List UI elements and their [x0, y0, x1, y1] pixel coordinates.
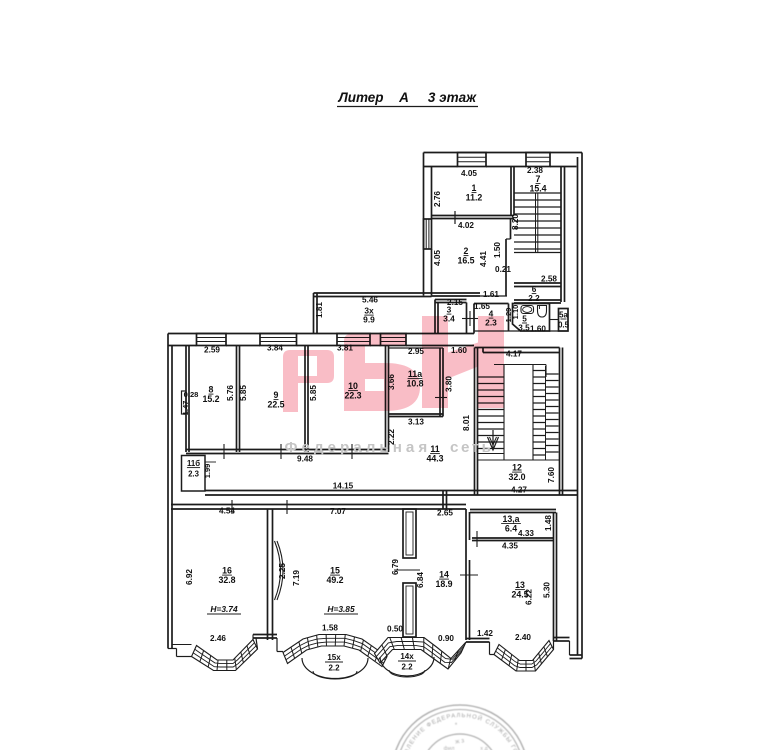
svg-text:1.60: 1.60 [530, 325, 546, 334]
svg-text:0.50: 0.50 [387, 625, 403, 634]
svg-text:6.79: 6.79 [391, 559, 400, 575]
svg-text:8.01: 8.01 [462, 415, 471, 431]
svg-text:1.58: 1.58 [322, 624, 338, 633]
svg-text:4.27: 4.27 [511, 486, 527, 495]
svg-text:12: 12 [512, 463, 522, 473]
svg-text:7.19: 7.19 [292, 570, 301, 586]
svg-text:15х: 15х [327, 653, 341, 662]
svg-text:8: 8 [209, 385, 214, 395]
svg-text:7.60: 7.60 [547, 467, 556, 483]
svg-text:5.85: 5.85 [309, 385, 318, 401]
svg-text:4.33: 4.33 [518, 529, 534, 538]
svg-text:2.95: 2.95 [408, 347, 424, 356]
svg-text:2.3: 2.3 [188, 470, 200, 479]
svg-text:9.9: 9.9 [363, 315, 375, 325]
svg-text:Литер: Литер [337, 90, 383, 105]
svg-text:14х: 14х [400, 652, 414, 661]
svg-text:11: 11 [430, 444, 439, 454]
svg-text:0.90: 0.90 [438, 634, 454, 643]
svg-text:6: 6 [532, 285, 537, 294]
svg-text:0.5: 0.5 [558, 321, 570, 330]
svg-text:1.61: 1.61 [483, 290, 499, 299]
svg-text:4.05: 4.05 [433, 250, 442, 266]
svg-text:х д: х д [480, 746, 488, 750]
svg-text:2.25: 2.25 [278, 563, 287, 579]
svg-text:11б: 11б [187, 459, 200, 468]
svg-text:4.41: 4.41 [479, 251, 488, 267]
svg-text:3.84: 3.84 [267, 344, 283, 353]
svg-text:14: 14 [439, 570, 449, 580]
svg-text:4.54: 4.54 [219, 507, 235, 516]
svg-text:15: 15 [330, 566, 340, 576]
svg-text:А: А [398, 90, 409, 105]
svg-text:4.17: 4.17 [506, 350, 522, 359]
svg-text:32.0: 32.0 [508, 472, 525, 482]
svg-text:5.85: 5.85 [239, 385, 248, 401]
svg-text:2.2: 2.2 [528, 294, 540, 303]
svg-text:14.15: 14.15 [333, 482, 354, 491]
svg-text:2.59: 2.59 [204, 346, 220, 355]
svg-text:2.65: 2.65 [437, 509, 453, 518]
svg-text:15.4: 15.4 [529, 184, 546, 194]
svg-text:1.47: 1.47 [181, 401, 190, 416]
svg-text:6.22: 6.22 [525, 589, 534, 605]
svg-text:2.40: 2.40 [515, 633, 531, 642]
svg-text:32.8: 32.8 [218, 575, 235, 585]
svg-text:2.58: 2.58 [541, 275, 557, 284]
svg-text:16.5: 16.5 [457, 256, 474, 266]
svg-text:Н=3.74: Н=3.74 [210, 604, 238, 614]
svg-text:8.20: 8.20 [511, 214, 520, 230]
svg-text:сеть: сеть [450, 439, 493, 456]
svg-text:3 этаж: 3 этаж [428, 90, 477, 105]
svg-text:2.46: 2.46 [210, 634, 226, 643]
svg-text:1.48: 1.48 [544, 515, 553, 531]
svg-text:9: 9 [274, 390, 279, 400]
svg-text:2.2: 2.2 [328, 664, 340, 673]
svg-text:49.2: 49.2 [326, 575, 343, 585]
svg-text:2.2: 2.2 [401, 663, 413, 672]
svg-text:1.65: 1.65 [474, 302, 490, 311]
svg-text:5.46: 5.46 [362, 296, 378, 305]
svg-text:11.2: 11.2 [466, 193, 483, 203]
svg-text:4.05: 4.05 [461, 169, 477, 178]
svg-text:1.99: 1.99 [203, 464, 212, 478]
svg-text:1.42: 1.42 [477, 629, 493, 638]
svg-text:13: 13 [515, 580, 525, 590]
svg-text:18.9: 18.9 [435, 579, 452, 589]
svg-text:5.30: 5.30 [543, 582, 552, 598]
svg-text:7.07: 7.07 [330, 507, 346, 516]
svg-text:1.50: 1.50 [493, 242, 502, 258]
svg-text:6.84: 6.84 [416, 572, 425, 588]
svg-text:2: 2 [464, 246, 469, 256]
svg-text:5: 5 [522, 315, 527, 324]
svg-text:16: 16 [222, 566, 232, 576]
svg-text:0.28: 0.28 [184, 390, 199, 399]
svg-text:6.4: 6.4 [505, 524, 517, 534]
svg-text:7: 7 [536, 174, 541, 184]
svg-text:4.02: 4.02 [458, 221, 474, 230]
svg-text:фил: фил [444, 746, 455, 750]
svg-text:4.35: 4.35 [502, 542, 518, 551]
svg-text:Федеральная: Федеральная [285, 439, 432, 456]
svg-text:13,а: 13,а [502, 514, 519, 524]
svg-text:1: 1 [472, 183, 477, 193]
svg-text:5а: 5а [559, 311, 568, 320]
svg-text:6.92: 6.92 [185, 569, 194, 585]
svg-text:3.13: 3.13 [408, 418, 424, 427]
svg-text:5.76: 5.76 [226, 385, 235, 401]
svg-text:0.21: 0.21 [495, 265, 511, 274]
svg-text:2.15: 2.15 [447, 298, 463, 307]
svg-text:Н=3.85: Н=3.85 [327, 604, 355, 614]
svg-text:2.76: 2.76 [433, 191, 442, 207]
svg-text:1.10: 1.10 [511, 305, 520, 320]
svg-text:1.81: 1.81 [315, 302, 324, 318]
svg-text:22.5: 22.5 [267, 400, 284, 410]
svg-text:15.2: 15.2 [202, 394, 219, 404]
